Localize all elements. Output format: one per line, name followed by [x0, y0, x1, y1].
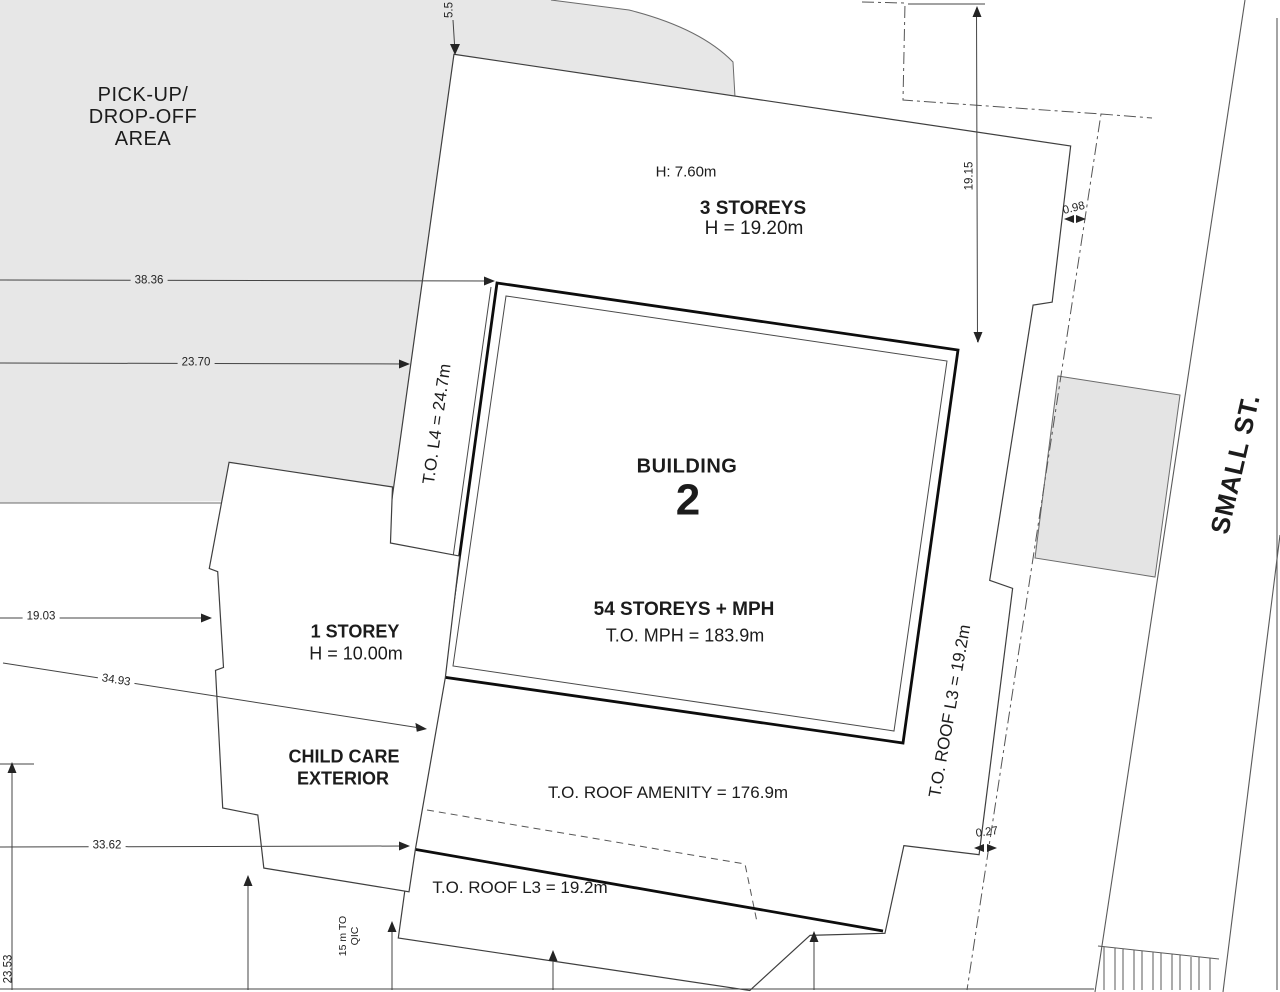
dim-33-62: 33.62	[89, 839, 126, 852]
pickup-line2: DROP-OFF	[89, 106, 197, 128]
to-roof-l3-bottom-label: T.O. ROOF L3 = 19.2m	[432, 878, 607, 898]
dim-23-53: 23.53	[2, 955, 15, 984]
pickup-line1: PICK-UP/	[89, 84, 197, 106]
pickup-area-label: PICK-UP/ DROP-OFF AREA	[89, 84, 197, 150]
one-storey-height: H = 10.00m	[309, 644, 403, 665]
to-mph-label: T.O. MPH = 183.9m	[606, 626, 765, 647]
pickup-line3: AREA	[89, 128, 197, 150]
one-storey-label: 1 STOREY	[311, 622, 400, 643]
building2-outline	[443, 283, 958, 743]
three-storeys-label: 3 STOREYS	[700, 198, 806, 220]
to-roof-amenity-label: T.O. ROOF AMENITY = 176.9m	[548, 783, 788, 803]
crosswalk-hatch	[1098, 946, 1219, 990]
dim-19-15: 19.15	[963, 162, 976, 191]
building-number: 2	[676, 476, 700, 527]
dim-19-03: 19.03	[23, 610, 60, 623]
site-plan: PICK-UP/ DROP-OFF AREA H: 7.60m 3 STOREY…	[0, 0, 1280, 992]
crossing-pad-shape	[1035, 376, 1180, 577]
roof-height-note: H: 7.60m	[656, 163, 717, 180]
dim-38-36: 38.36	[131, 274, 168, 287]
three-storeys-height: H = 19.20m	[705, 218, 804, 240]
storeys-54-label: 54 STOREYS + MPH	[594, 599, 775, 621]
child-care-line2: EXTERIOR	[297, 769, 389, 790]
child-care-line1: CHILD CARE	[289, 747, 400, 768]
dim-qic-line1: 15 m TO	[337, 916, 349, 956]
dim-qic: 15 m TO QIC	[337, 916, 361, 956]
dim-qic-line2: QIC	[349, 916, 361, 956]
street-curb-line-right	[1223, 535, 1280, 992]
dim-5-5: 5.5	[443, 2, 456, 18]
dim-23-70: 23.70	[178, 356, 215, 369]
